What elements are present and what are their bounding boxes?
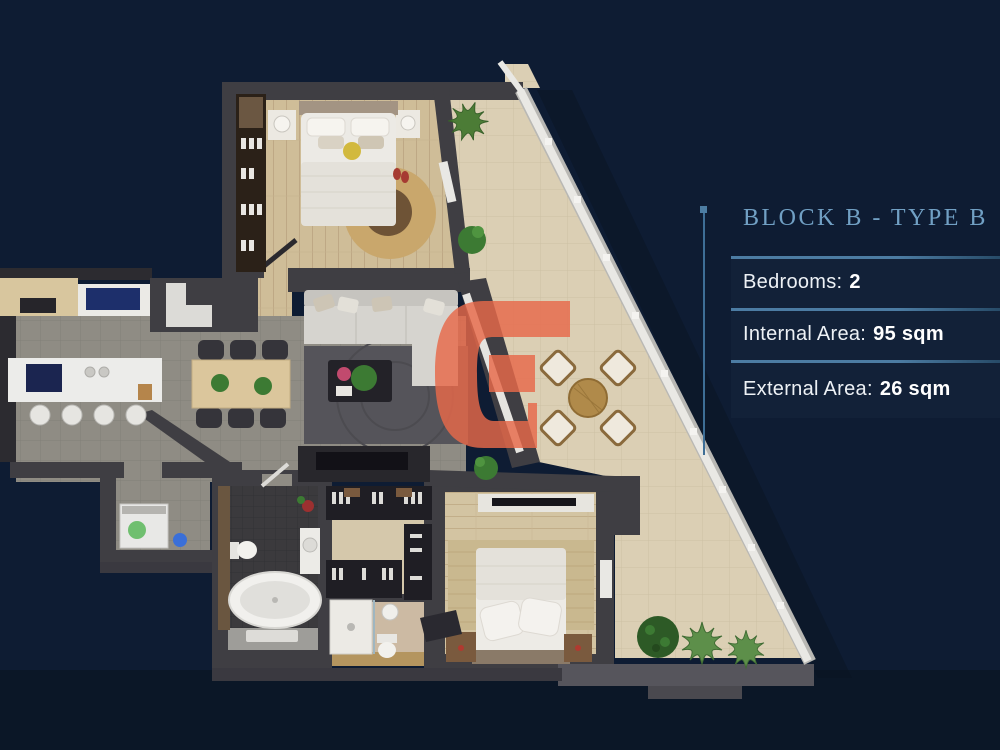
sofa-pillow <box>371 296 393 313</box>
plant-leaf <box>475 457 485 467</box>
candle <box>458 645 464 651</box>
bed2-duvet <box>476 548 566 600</box>
closet-box <box>396 488 412 497</box>
bath-wood-panel <box>218 486 230 630</box>
wall-bed2-notch <box>614 476 640 535</box>
external-area-value: 26 sqm <box>880 378 951 401</box>
bedrooms-value: 2 <box>849 271 860 294</box>
island-sink <box>99 367 109 377</box>
bush-leaf <box>645 625 655 635</box>
accent-dot <box>700 206 707 213</box>
coffee-table-book <box>336 386 352 396</box>
terrace-bottom-band <box>558 664 814 686</box>
toilet2-tank <box>377 634 397 643</box>
g-logo-square <box>489 355 535 392</box>
bath-mat <box>246 630 298 642</box>
divider <box>731 360 1000 363</box>
spec-row-internal-area: Internal Area: 95 sqm <box>731 308 1000 360</box>
accent-line <box>703 213 705 455</box>
bedrooms-label: Bedrooms: <box>743 271 842 294</box>
laundry-outer-band <box>100 562 212 573</box>
slipper <box>401 171 409 183</box>
wall-top <box>222 82 523 100</box>
table-plant <box>211 374 229 392</box>
entrance-door-notch <box>186 283 212 305</box>
island-cooktop <box>26 364 62 392</box>
divider <box>731 256 1000 259</box>
small-sink <box>382 604 398 620</box>
bed1-round-cushion <box>343 142 361 160</box>
divider <box>731 308 1000 311</box>
coffee-table-plant <box>351 365 377 391</box>
bed1-pillow <box>351 118 389 136</box>
background-band <box>0 670 1000 750</box>
cutting-board <box>138 384 152 400</box>
bed1-cushion <box>358 136 384 149</box>
lamp-left <box>274 116 290 132</box>
pink-flowers <box>337 367 351 381</box>
table-plant <box>254 377 272 395</box>
bed2-headboard <box>472 650 570 664</box>
spec-row-bedrooms: Bedrooms: 2 <box>731 256 1000 308</box>
terrace-bottom-step <box>648 686 742 699</box>
wall-living-top <box>288 268 470 292</box>
lamp-right <box>401 116 415 130</box>
terrace-plant-leaf <box>472 226 484 238</box>
laundry-clothes <box>128 521 146 539</box>
wardrobe-cabinet <box>239 97 263 128</box>
round-bush <box>637 616 679 658</box>
bed1-headboard <box>299 101 398 115</box>
internal-area-value: 95 sqm <box>873 323 944 346</box>
dining-table <box>192 360 290 408</box>
laundry-basket <box>173 533 187 547</box>
spec-rows: Bedrooms: 2 Internal Area: 95 sqm Extern… <box>731 256 1000 418</box>
closet-box <box>344 488 360 497</box>
shower-drain <box>347 623 355 631</box>
bathtub-drain <box>272 597 278 603</box>
bed1-pillow <box>307 118 345 136</box>
counter-hob <box>20 298 56 313</box>
bush-leaf <box>652 644 660 652</box>
washer-panel <box>122 506 166 514</box>
bed1-cushion <box>318 136 344 149</box>
toilet <box>237 541 257 559</box>
internal-area-label: Internal Area: <box>743 323 866 346</box>
slipper <box>393 168 401 180</box>
bottom-outer-band <box>212 668 562 681</box>
island-sink <box>85 367 95 377</box>
tv-screen <box>316 452 408 470</box>
page-title: BLOCK B - TYPE B <box>743 205 988 232</box>
counter-sink <box>86 288 140 310</box>
bed2-pillow <box>517 597 562 637</box>
bed2-tv <box>492 498 576 506</box>
bush-leaf <box>660 637 670 647</box>
vanity-sink <box>303 538 317 552</box>
slide-background: BLOCK B - TYPE B Bedrooms: 2 Internal Ar… <box>0 0 1000 750</box>
bed1-duvet <box>301 162 396 226</box>
bedroom2-terrace-door <box>600 560 612 598</box>
spec-row-external-area: External Area: 26 sqm <box>731 360 1000 418</box>
toilet2 <box>378 642 396 658</box>
flower-leaves <box>297 496 305 504</box>
external-area-label: External Area: <box>743 378 873 401</box>
candle <box>575 645 581 651</box>
